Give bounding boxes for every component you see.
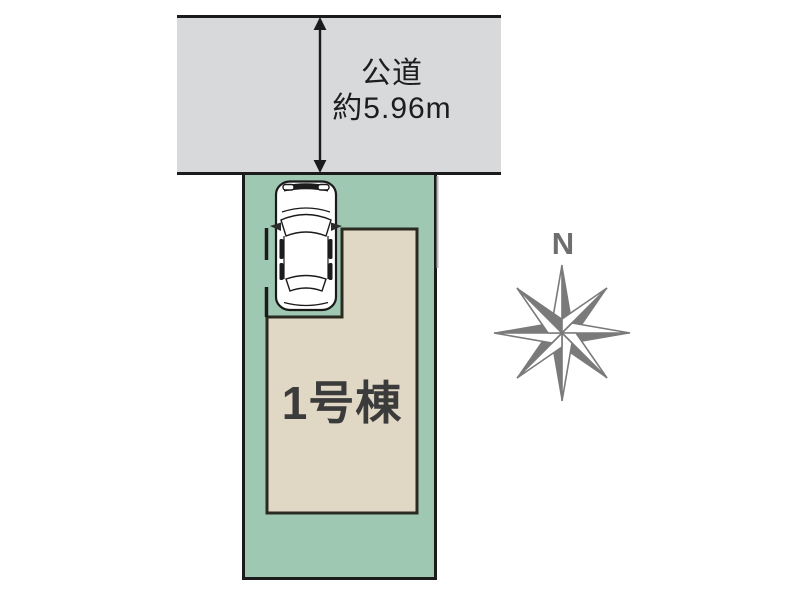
site-plan: 公道 約5.96m	[0, 0, 800, 602]
road-name: 公道	[292, 56, 492, 91]
road-width-value: 約5.96m	[292, 91, 492, 126]
road-label: 公道 約5.96m	[292, 56, 492, 126]
lot-area	[242, 172, 437, 580]
compass-north-label: N	[542, 228, 584, 260]
building-label: 1号棟	[267, 378, 417, 428]
compass-rose-icon	[494, 265, 630, 401]
